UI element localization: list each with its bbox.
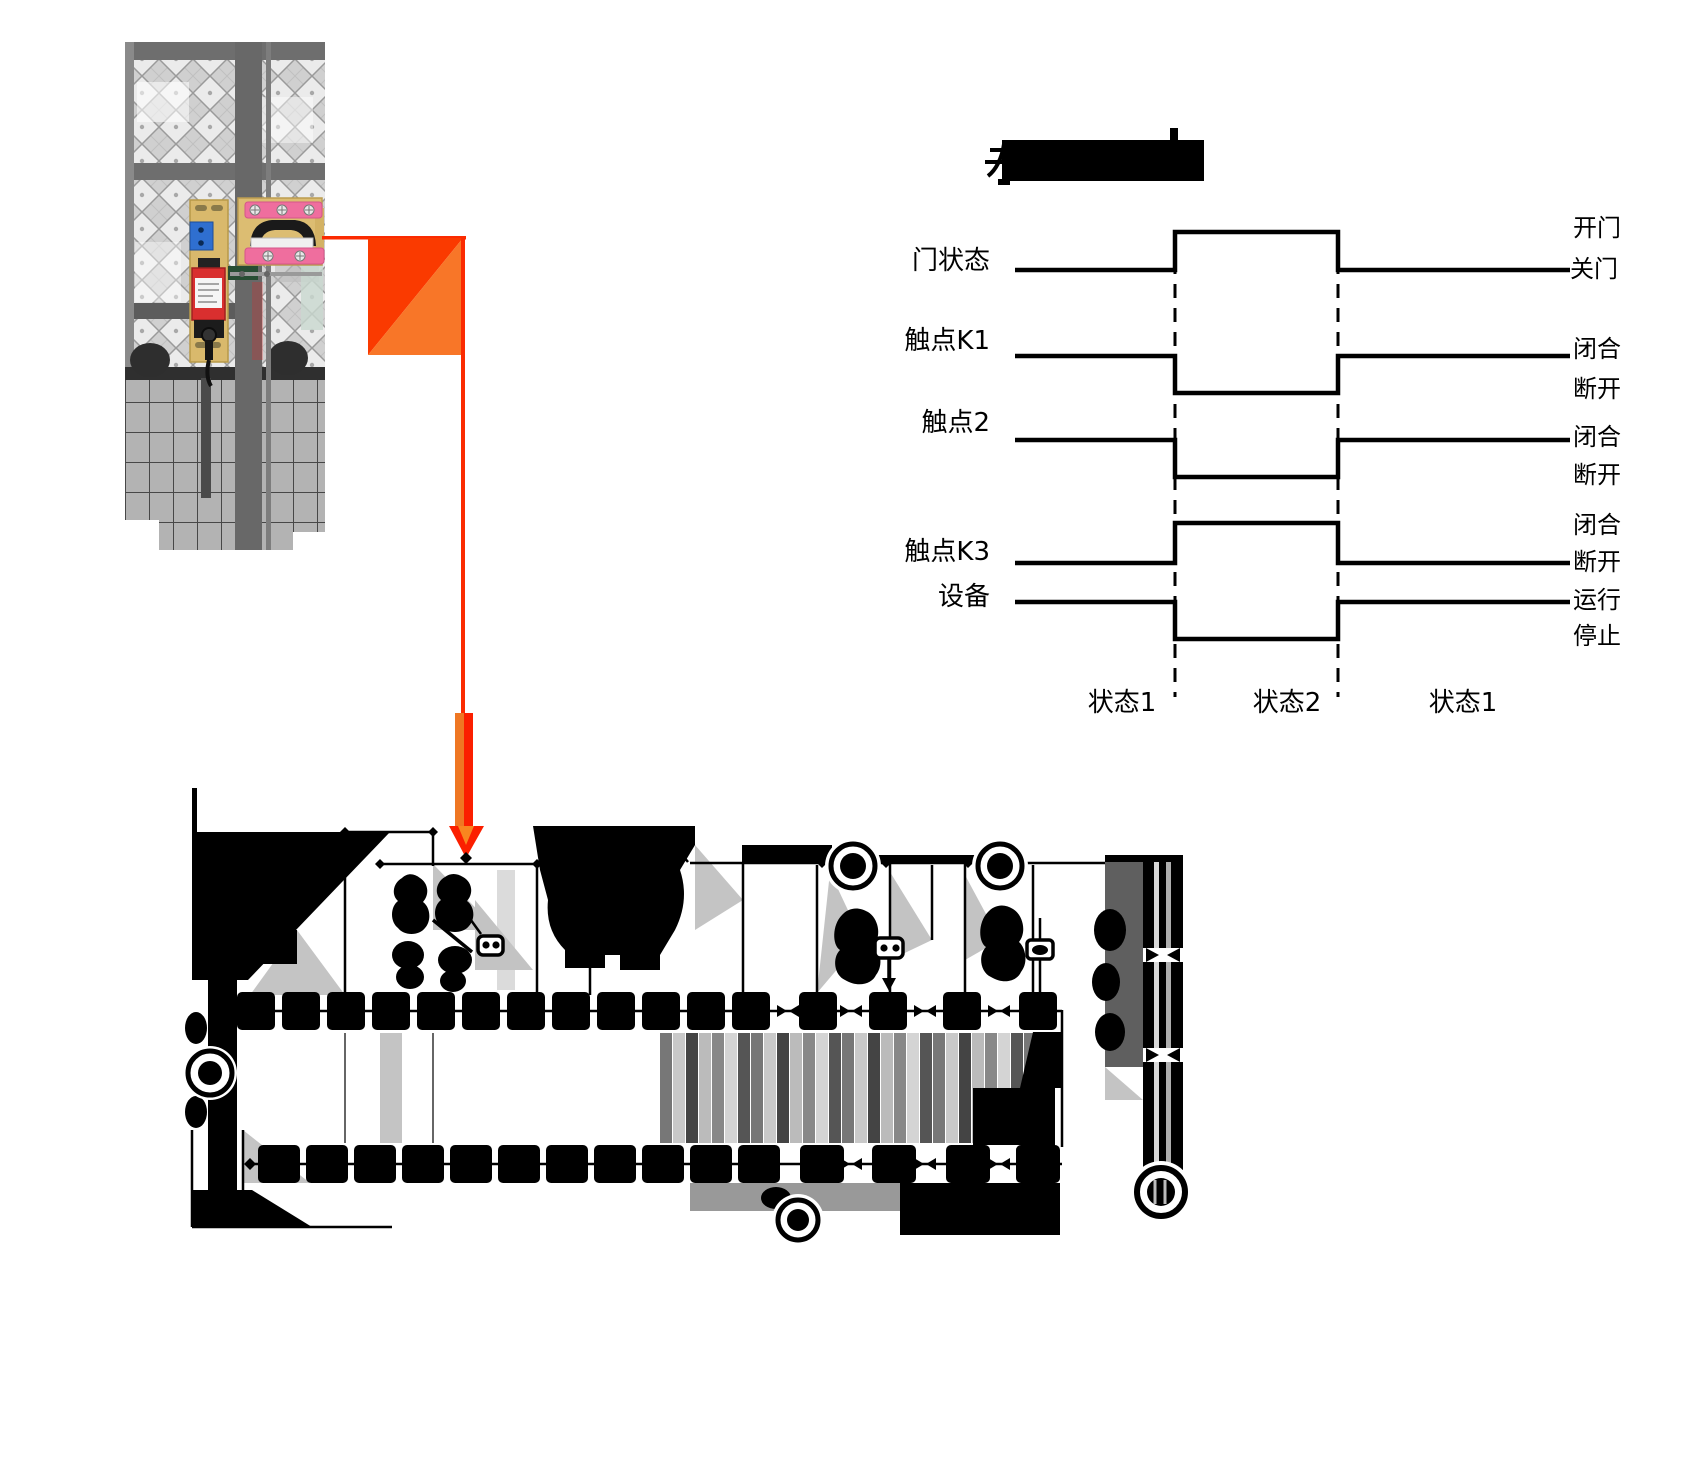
state-label-1-right: 状态1 [1393,688,1533,718]
level-label-door-closed: 关门 [1570,254,1618,284]
row-label-door-state: 门状态 [790,246,990,276]
equipment-photo [125,42,325,550]
row-label-contact-k3: 触点K3 [790,537,990,567]
page: 门状态 触点K1 触点2 触点K3 设备 开门 关门 闭合 断开 闭合 断开 闭… [0,0,1685,1476]
timing-diagram [1000,225,1600,705]
level-label-k3-closed: 闭合 [1573,510,1621,540]
waveform-contact-k3 [1015,523,1570,563]
machine-schematic [170,765,1190,1250]
level-label-k3-open: 断开 [1573,547,1621,577]
level-label-c2-open: 断开 [1573,460,1621,490]
row-label-contact-2: 触点2 [790,408,990,438]
state-label-1-left: 状态1 [1052,688,1192,718]
waveform-device [1015,602,1570,639]
roller-right [268,341,308,375]
level-label-device-stop: 停止 [1573,621,1621,651]
fence-rail-top [125,42,325,60]
level-label-door-open: 开门 [1573,213,1621,243]
level-label-k1-open: 断开 [1573,374,1621,404]
blue-block [190,222,213,250]
state-label-2: 状态2 [1217,688,1357,718]
waveform-door-state [1015,232,1570,270]
switch-label [195,278,222,308]
central-mass [533,826,695,970]
waveform-contact-2 [1015,440,1570,477]
redacted-title-box [978,122,1213,190]
wheel-top-icons [825,838,1028,894]
row-label-device: 设备 [790,582,990,612]
level-label-device-run: 运行 [1573,585,1621,615]
state-boundary-dashed-lines [1175,236,1338,697]
component-blobs [392,874,473,992]
waveforms [1015,232,1570,639]
rail-black-column [1143,860,1183,1170]
waveform-contact-k1 [1015,356,1570,393]
row-label-contact-k1: 触点K1 [790,326,990,356]
between-rows-stripes [345,1033,1049,1143]
bottom-right-mass [900,1183,1060,1235]
level-label-k1-closed: 闭合 [1573,334,1621,364]
level-label-c2-closed: 闭合 [1573,422,1621,452]
pink-bar-bottom [245,248,324,264]
roller-left [130,343,170,377]
fence-rail-mid [125,163,325,180]
